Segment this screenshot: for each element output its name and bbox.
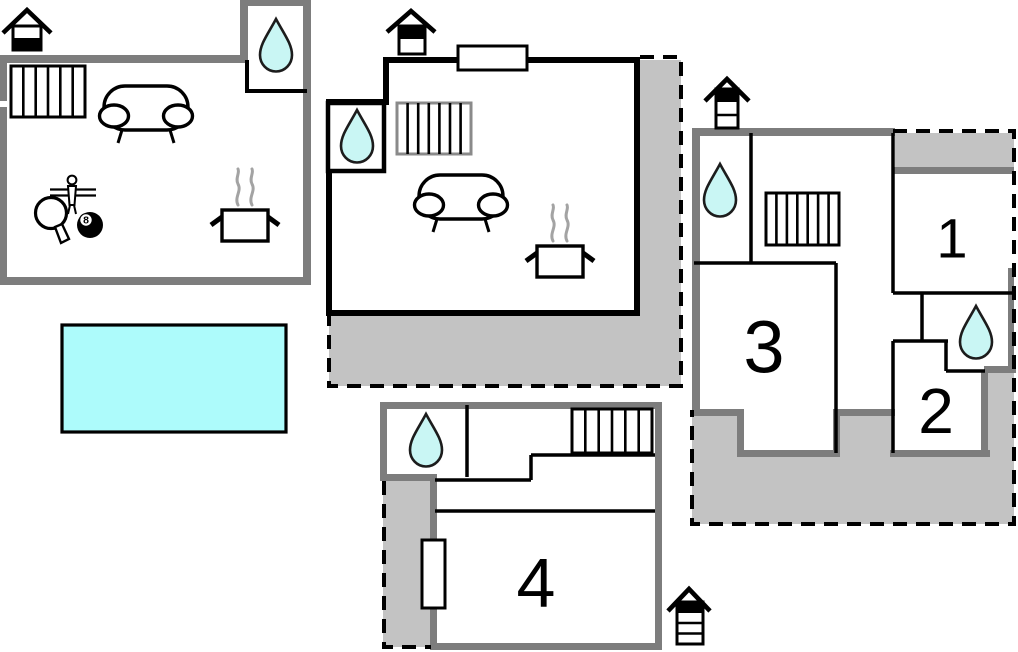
door-opening [422,540,445,608]
floor-plan-d: 4 [380,402,710,650]
room-4-label: 4 [517,544,556,622]
room-1-label: 1 [936,207,967,270]
stairs-icon [766,193,839,245]
room-3-label: 3 [743,306,784,389]
floor-plan-b [328,11,681,386]
house-level-icon-b [387,11,435,54]
stairs-icon [572,409,652,453]
floor-plan-drawing: 8 [0,0,1018,652]
house-level-icon-c [705,79,749,128]
terrace-c-top [895,133,1014,170]
house-level-icon-d [668,589,710,644]
window-opening [458,46,527,70]
floor-plan-page: 8 [0,0,1018,652]
eight-ball-number: 8 [83,215,89,227]
floor-plan-a: 8 [0,0,311,285]
stairs-icon [397,103,471,154]
swimming-pool [62,325,286,432]
room-2-label: 2 [918,375,954,447]
stairs-icon [11,66,85,117]
floor-plan-c: 1 2 3 [692,79,1016,524]
house-level-icon-a [3,10,51,50]
eight-ball-icon: 8 [77,212,103,238]
